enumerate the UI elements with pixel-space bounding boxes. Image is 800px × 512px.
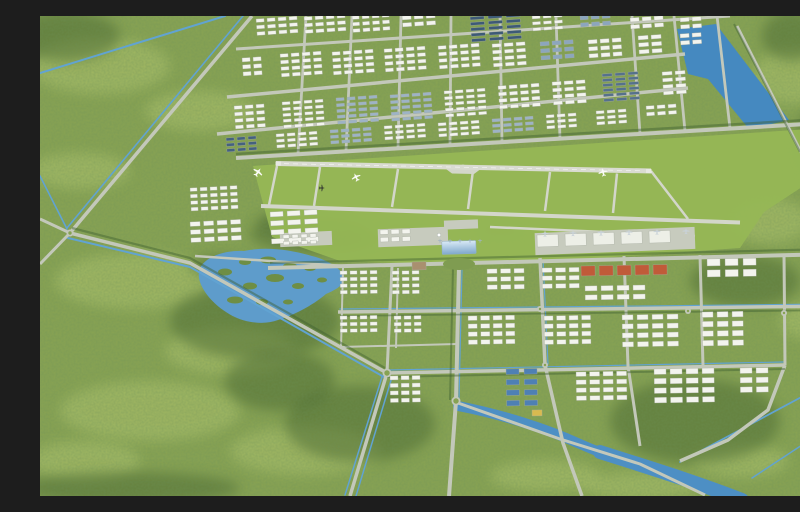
building <box>284 125 292 129</box>
building <box>283 113 291 117</box>
building <box>423 92 431 96</box>
building <box>471 120 479 124</box>
building <box>532 96 540 100</box>
building <box>204 229 214 234</box>
building <box>343 57 351 61</box>
building <box>407 60 415 64</box>
building <box>412 290 419 294</box>
building <box>589 53 598 58</box>
building <box>477 88 485 92</box>
building <box>190 188 197 192</box>
building <box>362 21 369 25</box>
building <box>506 323 515 328</box>
building <box>576 388 586 393</box>
building <box>607 115 615 119</box>
roundabout-island <box>68 231 71 234</box>
building <box>326 21 334 25</box>
building <box>243 71 251 76</box>
building <box>602 16 610 18</box>
building <box>234 112 242 116</box>
building <box>649 230 670 243</box>
building <box>200 194 207 198</box>
building <box>256 110 264 114</box>
building <box>553 94 562 98</box>
building <box>401 383 409 387</box>
building <box>283 119 291 123</box>
building <box>412 271 419 275</box>
building <box>406 129 414 133</box>
building <box>203 221 213 226</box>
building <box>414 22 423 27</box>
building <box>298 137 306 141</box>
building <box>257 31 265 35</box>
building <box>450 64 458 68</box>
building <box>445 102 453 106</box>
building <box>390 383 398 387</box>
building <box>315 16 323 20</box>
building <box>654 16 663 20</box>
building <box>628 76 638 79</box>
building <box>599 265 613 275</box>
building <box>456 107 464 111</box>
building <box>544 340 553 345</box>
building <box>638 42 648 47</box>
building <box>493 63 502 67</box>
building <box>359 113 367 117</box>
building <box>370 315 377 319</box>
building <box>270 211 283 217</box>
building <box>402 22 411 27</box>
building <box>580 22 588 27</box>
building <box>313 58 321 62</box>
building <box>569 124 577 128</box>
building <box>498 85 506 89</box>
building <box>455 90 463 94</box>
building <box>226 143 234 147</box>
building <box>569 339 578 344</box>
building <box>304 106 312 110</box>
building <box>637 315 648 320</box>
building <box>392 271 399 275</box>
building <box>204 237 214 242</box>
building <box>412 284 419 288</box>
building <box>412 99 420 103</box>
building <box>230 219 240 224</box>
building <box>332 51 340 55</box>
building <box>314 64 322 68</box>
building <box>369 95 377 99</box>
building <box>281 73 289 77</box>
building <box>638 35 648 40</box>
building <box>602 73 612 76</box>
building-cluster <box>588 38 622 58</box>
roundabout-island <box>544 364 546 366</box>
building <box>565 54 574 59</box>
building <box>254 71 262 76</box>
building <box>743 269 756 276</box>
building <box>514 122 522 126</box>
building <box>348 114 356 118</box>
building <box>500 269 510 274</box>
building <box>510 104 518 108</box>
building <box>391 237 399 242</box>
building <box>743 258 756 265</box>
building <box>309 137 317 141</box>
building <box>445 108 453 112</box>
building <box>646 112 654 116</box>
building <box>350 322 357 326</box>
building-cluster <box>394 316 421 333</box>
building <box>629 81 639 84</box>
building <box>501 277 511 282</box>
building <box>438 52 446 56</box>
building <box>382 20 389 24</box>
building <box>370 270 377 274</box>
building <box>278 23 286 27</box>
building <box>642 17 651 22</box>
building <box>585 295 597 300</box>
building <box>630 17 639 22</box>
building <box>340 284 347 288</box>
building <box>280 53 288 57</box>
building <box>190 229 200 234</box>
terminal-garden <box>443 258 475 270</box>
building <box>668 104 676 108</box>
building <box>557 114 565 118</box>
building <box>460 126 468 130</box>
building <box>370 277 377 281</box>
building <box>248 136 256 140</box>
building <box>576 80 585 84</box>
apron <box>378 227 449 247</box>
building <box>231 205 238 209</box>
building <box>569 315 578 320</box>
building <box>271 229 284 235</box>
building <box>373 27 380 31</box>
building <box>499 105 507 109</box>
building <box>350 329 357 333</box>
building <box>412 390 420 394</box>
building <box>616 82 626 85</box>
building <box>352 22 359 26</box>
building <box>541 55 550 60</box>
building <box>617 294 629 299</box>
building <box>355 63 363 67</box>
building <box>702 368 714 374</box>
roundabout-island <box>384 370 389 375</box>
building <box>279 30 287 34</box>
building <box>438 128 446 132</box>
building <box>396 136 404 140</box>
building <box>449 122 457 126</box>
building <box>564 47 573 52</box>
building <box>600 39 609 44</box>
building <box>707 270 720 277</box>
building <box>276 139 284 143</box>
building <box>630 96 640 99</box>
building <box>412 262 426 270</box>
building <box>360 119 368 123</box>
building <box>670 369 682 375</box>
building <box>396 61 404 65</box>
building <box>668 110 676 114</box>
building <box>630 24 639 29</box>
building <box>404 322 411 326</box>
building <box>505 62 514 66</box>
building <box>543 21 551 25</box>
building <box>414 16 423 19</box>
building <box>450 133 458 137</box>
building <box>407 135 415 139</box>
building <box>338 121 346 125</box>
building <box>662 71 672 75</box>
building <box>354 56 362 60</box>
building <box>637 342 648 347</box>
building <box>294 112 302 116</box>
building <box>289 16 297 20</box>
building <box>314 71 322 75</box>
building <box>468 332 477 337</box>
building <box>663 91 673 95</box>
building <box>493 339 502 344</box>
building <box>478 105 486 109</box>
building <box>740 377 752 383</box>
building <box>493 323 502 328</box>
building <box>392 118 400 122</box>
building <box>617 285 629 290</box>
building <box>220 193 227 197</box>
building <box>652 332 663 337</box>
building <box>557 332 566 337</box>
building <box>629 91 639 94</box>
building <box>363 133 371 137</box>
building <box>390 94 398 98</box>
building <box>553 101 562 105</box>
building <box>332 58 340 62</box>
building <box>617 379 627 384</box>
building <box>413 104 421 108</box>
building <box>417 123 425 127</box>
building <box>604 98 614 101</box>
building <box>221 199 228 203</box>
building <box>256 18 264 22</box>
building <box>449 45 457 49</box>
building <box>600 46 609 51</box>
building <box>616 87 626 90</box>
building-cluster <box>412 262 426 270</box>
building <box>282 101 290 105</box>
building <box>603 379 613 384</box>
building <box>532 16 540 19</box>
building <box>612 38 621 43</box>
building <box>568 118 576 122</box>
building <box>520 84 528 88</box>
building <box>359 107 367 111</box>
building <box>348 108 356 112</box>
building <box>380 237 388 242</box>
building <box>425 115 433 119</box>
wetland-island <box>292 283 304 289</box>
building-cluster <box>487 268 524 289</box>
building <box>590 396 600 401</box>
building <box>190 221 200 226</box>
building <box>596 116 604 120</box>
building <box>340 329 347 333</box>
road <box>500 16 502 142</box>
building <box>510 98 518 102</box>
building <box>521 97 529 101</box>
building <box>487 285 497 290</box>
building <box>603 93 613 96</box>
building <box>569 283 579 288</box>
building <box>417 129 425 133</box>
building <box>514 284 524 289</box>
building <box>461 63 469 67</box>
building <box>617 97 627 100</box>
building <box>370 283 377 287</box>
building-cluster <box>596 109 627 125</box>
building <box>457 113 465 117</box>
building <box>692 17 701 22</box>
building <box>292 241 298 245</box>
road <box>784 254 785 365</box>
building <box>287 210 300 216</box>
building <box>390 100 398 104</box>
building <box>471 43 479 47</box>
building <box>460 50 468 54</box>
building <box>540 41 549 46</box>
building <box>353 28 360 32</box>
building <box>653 264 667 274</box>
building <box>291 59 299 63</box>
building <box>293 101 301 105</box>
building <box>509 85 517 89</box>
building <box>235 125 243 129</box>
building <box>384 131 392 135</box>
building <box>479 111 487 115</box>
building <box>556 284 566 289</box>
building <box>532 410 542 416</box>
building <box>268 31 276 35</box>
building <box>201 207 208 211</box>
building <box>481 340 490 345</box>
building-cluster <box>540 40 574 60</box>
building <box>281 66 289 70</box>
building <box>330 135 338 139</box>
building <box>315 99 323 103</box>
building <box>449 51 457 55</box>
building <box>331 140 339 144</box>
building <box>365 56 373 60</box>
building <box>402 229 410 234</box>
building <box>402 290 409 294</box>
building <box>395 130 403 134</box>
building <box>295 124 303 128</box>
building <box>402 236 410 241</box>
building <box>310 240 316 244</box>
building <box>615 72 625 75</box>
building <box>256 104 264 108</box>
building <box>305 117 313 121</box>
building <box>304 219 317 225</box>
building <box>582 339 591 344</box>
building <box>390 398 398 402</box>
building <box>257 117 265 121</box>
building <box>372 21 379 25</box>
building <box>304 16 312 20</box>
building <box>468 316 477 321</box>
building <box>191 237 201 242</box>
building <box>370 322 377 326</box>
building <box>234 105 242 109</box>
building <box>292 66 300 70</box>
building <box>717 321 728 327</box>
roundabout-island <box>539 308 541 310</box>
building-cluster <box>226 136 257 152</box>
building <box>468 340 477 345</box>
building <box>507 400 520 406</box>
building <box>439 65 447 69</box>
building <box>506 379 519 385</box>
building <box>293 106 301 110</box>
building <box>702 377 714 383</box>
building <box>210 187 217 191</box>
building <box>547 125 555 129</box>
building <box>310 234 316 238</box>
building <box>364 138 372 142</box>
building <box>652 314 663 319</box>
building <box>515 128 523 132</box>
building <box>466 95 474 99</box>
building <box>370 107 378 111</box>
building <box>582 323 591 328</box>
building <box>211 206 218 210</box>
building <box>341 134 349 138</box>
building <box>686 397 698 403</box>
building <box>588 39 597 44</box>
building <box>305 111 313 115</box>
building <box>492 43 501 47</box>
building <box>407 66 415 70</box>
building <box>404 329 411 333</box>
building <box>395 48 403 52</box>
building <box>601 286 613 291</box>
building <box>461 57 469 61</box>
building <box>633 285 645 290</box>
building <box>230 186 237 190</box>
building <box>581 266 595 276</box>
building <box>414 322 421 326</box>
building <box>395 54 403 58</box>
building <box>423 98 431 102</box>
building <box>343 51 351 55</box>
building <box>657 111 665 115</box>
building <box>546 114 554 118</box>
building <box>337 16 345 18</box>
building <box>391 229 399 234</box>
building <box>652 323 663 328</box>
building <box>360 284 367 288</box>
building <box>717 331 728 337</box>
building <box>565 100 574 104</box>
building <box>238 148 246 152</box>
building <box>676 83 686 87</box>
building <box>414 329 421 333</box>
building <box>670 388 682 394</box>
building <box>363 28 370 32</box>
building-cluster <box>581 264 667 275</box>
building <box>390 391 398 395</box>
